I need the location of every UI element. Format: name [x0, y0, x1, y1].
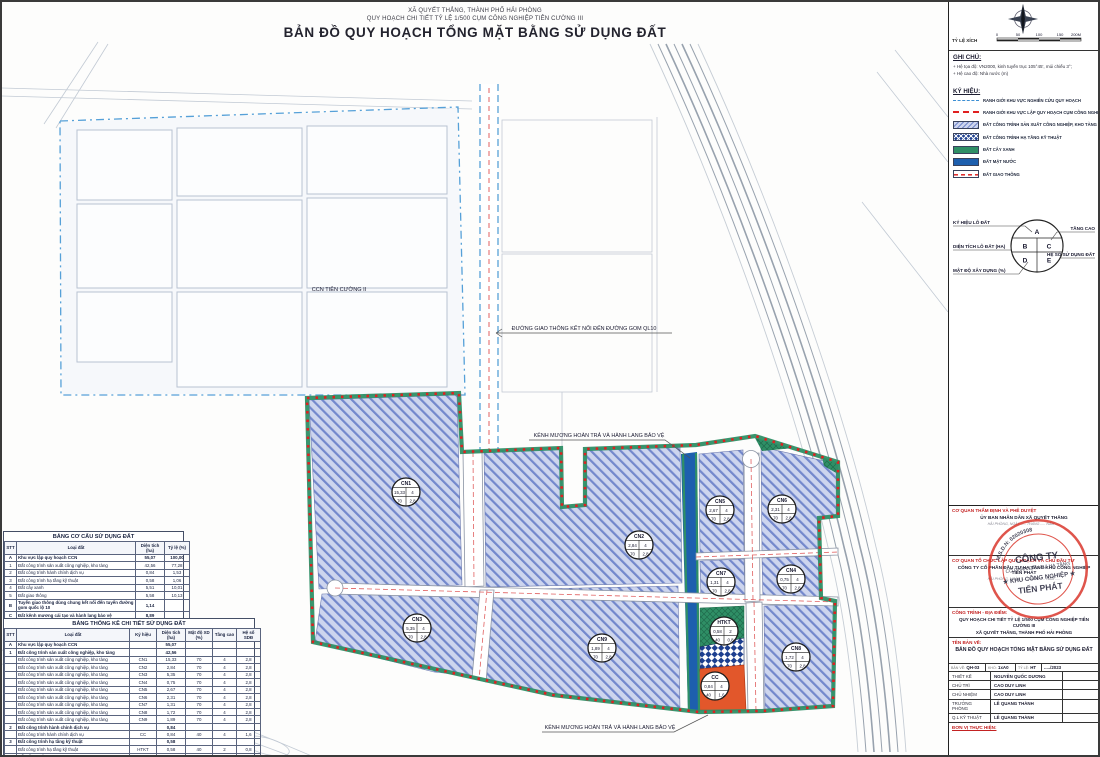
parcel-key-diagram: A B C D E KÝ HIỆU LÔ ĐẤT DIỆN TÍCH LÔ ĐẤ… — [949, 190, 1099, 300]
svg-text:70: 70 — [712, 589, 717, 594]
sidebar-divider — [949, 50, 1099, 51]
scale-tick: 0 — [996, 32, 999, 37]
svg-text:2,8: 2,8 — [794, 586, 801, 591]
plan-swatch-icon — [953, 111, 979, 113]
legend-list: RANH GIỚI KHU VỰC NGHIÊN CỨU QUY HOẠCHRA… — [953, 97, 1097, 178]
scalebar-ticks: 050100150200M — [996, 32, 1081, 37]
land-detail-table: BẢNG THỐNG KÊ CHI TIẾT SỬ DỤNG ĐẤT STTLo… — [3, 618, 255, 757]
land-structure-table-title: BẢNG CƠ CẤU SỬ DỤNG ĐẤT — [4, 532, 183, 541]
personnel-rows: THIẾT KẾNGUYỄN QUỐC DƯƠNGCHỦ TRÌCAO DUY … — [949, 672, 1099, 723]
legend-label: ĐẤT CÂY XANH — [983, 147, 1015, 152]
investor-org-name: CÔNG TY CỔ PHẦN ĐẦU TƯ HẠ TẦNG KHU CÔNG … — [952, 565, 1096, 575]
land-structure-table: BẢNG CƠ CẤU SỬ DỤNG ĐẤT STTLoại đấtDiện … — [3, 531, 184, 621]
sidebar: TỶ LỆ XÍCH 050100150200M GHI CHÚ: + Hệ t… — [948, 2, 1099, 755]
drawing-sheet: CN115,334702,8CN22,844702,8CN52,674702,8… — [0, 0, 1100, 757]
annotation-channel-bottom: KÊNH MƯƠNG HOÀN TRẢ VÀ HÀNH LANG BẢO VỆ — [545, 723, 676, 731]
parcel-key-cell-c: C — [1047, 244, 1052, 251]
study-swatch-icon — [953, 100, 979, 101]
table-row: 3Đất công trình hạ tầng kỹ thuật0,581,06 — [5, 577, 190, 584]
parcel-label-CC: CC0,844401,6 — [701, 672, 729, 700]
table-row: 5Đất giao thông5,5810,13 — [5, 592, 190, 599]
executor-section: ĐƠN VỊ THỰC HIỆN: — [949, 723, 1099, 757]
parcel-key-cell-e: E — [1047, 258, 1052, 265]
svg-text:2,84: 2,84 — [628, 543, 637, 548]
legend-item-plan: RANH GIỚI KHU VỰC LẬP QUY HOẠCH CỤM CÔNG… — [953, 108, 1097, 116]
svg-text:0,58: 0,58 — [713, 629, 722, 634]
svg-text:1,6: 1,6 — [718, 693, 725, 698]
svg-text:1,31: 1,31 — [710, 580, 719, 585]
approval-section: CƠ QUAN THẨM ĐỊNH VÀ PHÊ DUYỆT ỦY BAN NH… — [949, 506, 1099, 556]
svg-text:0,84: 0,84 — [704, 684, 713, 689]
column-header: Hệ số SDĐ — [237, 629, 261, 642]
parcel-label-CN4: CN40,754702,8 — [777, 565, 805, 593]
parcel-key-label-density: MẬT ĐỘ XÂY DỰNG (%) — [953, 266, 1006, 273]
svg-text:CN5: CN5 — [715, 499, 725, 505]
table-row: Đất công trình sản xuất công nghiệp, kho… — [5, 708, 261, 715]
annotation-ccn2: CCN TIÊN CƯỜNG II — [312, 285, 367, 293]
legend-label: ĐẤT CÔNG TRÌNH HẠ TẦNG KỸ THUẬT — [983, 135, 1062, 140]
ccn2-area — [60, 107, 465, 395]
parcel-key-label-floors: TẦNG CAO — [1071, 225, 1096, 231]
annotation-channel-top: KÊNH MƯƠNG HOÀN TRẢ VÀ HÀNH LANG BẢO VỆ — [534, 431, 665, 439]
parcel-label-CN6: CN62,314702,8 — [768, 495, 796, 523]
table-row: Đất công trình sản xuất công nghiệp, kho… — [5, 686, 261, 693]
personnel-row: CHỦ TRÌCAO DUY LINH — [949, 681, 1099, 690]
table-row: Đất công trình sản xuất công nghiệp, kho… — [5, 664, 261, 671]
road-B — [746, 602, 764, 712]
scalebar: 050100150200M — [995, 30, 1095, 46]
project-section: CÔNG TRÌNH - ĐỊA ĐIỂM: QUY HOẠCH CHI TIẾ… — [949, 608, 1099, 638]
svg-text:2,8: 2,8 — [409, 499, 416, 504]
green-swatch-icon — [953, 146, 979, 154]
scale-tick: 200M — [1071, 32, 1081, 37]
notes-title: GHI CHÚ: — [953, 54, 1096, 61]
column-header: Diện tích (ha) — [136, 542, 165, 555]
approval-date-line: HẢI PHÒNG, NGÀY ..... THÁNG ..... NĂM ..… — [952, 522, 1096, 526]
table-row: 2Đất công trình hành chính dịch vụ0,841,… — [5, 569, 190, 576]
personnel-row: TRƯỞNG PHÒNGLÊ QUANG THÀNH — [949, 700, 1099, 714]
column-header: Diện tích (ha) — [157, 629, 186, 642]
scale-tick: 150 — [1057, 32, 1064, 37]
parcel-CN1 — [309, 395, 462, 589]
parcel-label-CN9: CN91,894702,8 — [588, 634, 616, 662]
svg-text:CN4: CN4 — [786, 568, 796, 574]
land-detail-table-grid: STTLoại đấtKý hiệuDiện tích (ha)Mật độ X… — [4, 628, 261, 757]
legend-item-technical: ĐẤT CÔNG TRÌNH HẠ TẦNG KỸ THUẬT — [953, 133, 1097, 141]
drawing-meta-row: BẢN VẼ: QH-03KHỔ: 1xA0TỶ LỆ: HT ...../20… — [949, 664, 1099, 672]
svg-text:0,75: 0,75 — [780, 577, 789, 582]
svg-text:70: 70 — [711, 517, 716, 522]
column-header: STT — [5, 629, 17, 642]
parcel-label-CN1: CN115,334702,8 — [392, 478, 420, 506]
table-row: 4Đất cây xanh5,51 — [5, 753, 261, 757]
svg-text:2,8: 2,8 — [723, 517, 730, 522]
table-row: 1Đất công trình sản xuất công nghiệp, kh… — [5, 562, 190, 569]
table-row: Đất công trình hành chính dịch vụCC0,844… — [5, 731, 261, 738]
parcel-key-label-far: HỆ SỐ SỬ DỤNG ĐẤT — [1047, 250, 1095, 257]
column-header: Loại đất — [17, 629, 130, 642]
svg-text:2,8: 2,8 — [785, 516, 792, 521]
investor-date-line: HẢI PHÒNG, NGÀY ..... THÁNG ..... NĂM ..… — [952, 577, 1096, 581]
annotation-connect-road: ĐƯỜNG GIAO THÔNG KẾT NỐI ĐẾN ĐƯỜNG GOM Q… — [512, 325, 657, 332]
traffic-swatch-icon — [953, 170, 979, 178]
parcel-key-cell-b: B — [1023, 244, 1028, 251]
land-detail-table-title: BẢNG THỐNG KÊ CHI TIẾT SỬ DỤNG ĐẤT — [4, 619, 254, 628]
parcel-key-label-key: KÝ HIỆU LÔ ĐẤT — [953, 218, 990, 225]
svg-text:1,89: 1,89 — [591, 646, 600, 651]
approval-org-name: ỦY BAN NHÂN DÂN XÃ QUYẾT THẮNG — [952, 515, 1096, 520]
svg-text:CN9: CN9 — [597, 637, 607, 643]
svg-text:2,8: 2,8 — [724, 589, 731, 594]
project-line1: QUY HOẠCH CHI TIẾT TỶ LỆ 1/500 CỤM CÔNG … — [952, 617, 1096, 629]
personnel-row: Q.L KỸ THUẬTLÊ QUANG THÀNH — [949, 714, 1099, 723]
drawing-name: BẢN ĐỒ QUY HOẠCH TỔNG MẶT BẰNG SỬ DỤNG Đ… — [952, 647, 1096, 653]
table-row: 3Đất công trình hạ tầng kỹ thuật0,58 — [5, 738, 261, 745]
legend-label: RANH GIỚI KHU VỰC NGHIÊN CỨU QUY HOẠCH — [983, 98, 1081, 103]
table-row: 1Đất công trình sản xuất công nghiệp, kh… — [5, 649, 261, 656]
title-block: CƠ QUAN THẨM ĐỊNH VÀ PHÊ DUYỆT ỦY BAN NH… — [949, 505, 1099, 755]
svg-text:40: 40 — [706, 693, 711, 698]
project-line2: XÃ QUYẾT THẮNG, THÀNH PHỐ HẢI PHÒNG — [952, 630, 1096, 636]
svg-text:2,8: 2,8 — [605, 655, 612, 660]
svg-text:70: 70 — [630, 552, 635, 557]
svg-text:5,35: 5,35 — [406, 626, 415, 631]
svg-text:1,72: 1,72 — [785, 655, 794, 660]
svg-text:70: 70 — [593, 655, 598, 660]
note-item: + Hệ tọa độ: VN2000, kinh tuyến trục 105… — [953, 63, 1096, 70]
table-row: Đất công trình sản xuất công nghiệp, kho… — [5, 716, 261, 723]
map-area: CN115,334702,8CN22,844702,8CN52,674702,8… — [2, 2, 948, 755]
parcel-CN9 — [475, 586, 680, 710]
svg-text:70: 70 — [408, 635, 413, 640]
scale-tick: 50 — [1016, 32, 1021, 37]
legend-item-study: RANH GIỚI KHU VỰC NGHIÊN CỨU QUY HOẠCH — [953, 97, 1097, 104]
project-label: CÔNG TRÌNH - ĐỊA ĐIỂM: — [952, 610, 1096, 615]
svg-text:CN7: CN7 — [716, 571, 726, 577]
svg-text:0,8: 0,8 — [727, 638, 734, 643]
technical-swatch-icon — [953, 133, 979, 141]
table-row: AKhu vực lập quy hoạch CCN55,07100,00 — [5, 554, 190, 561]
svg-text:70: 70 — [787, 664, 792, 669]
column-header: Loại đất — [17, 542, 136, 555]
drawing-name-section: TÊN BẢN VẼ: BẢN ĐỒ QUY HOẠCH TỔNG MẶT BẰ… — [949, 638, 1099, 664]
table-row: Đất công trình sản xuất công nghiệp, kho… — [5, 679, 261, 686]
svg-text:CN3: CN3 — [412, 617, 422, 623]
parcel-CN3 — [315, 590, 480, 676]
svg-text:70: 70 — [782, 586, 787, 591]
svg-text:CC: CC — [711, 675, 719, 681]
legend-label: ĐẤT MẶT NƯỚC — [983, 159, 1016, 164]
parcel-label-CN8: CN81,724702,8 — [782, 643, 810, 671]
land-structure-table-grid: STTLoại đấtDiện tích (ha)Tỷ lệ (%)AKhu v… — [4, 541, 190, 620]
svg-text:2,67: 2,67 — [709, 508, 718, 513]
notes-list: + Hệ tọa độ: VN2000, kinh tuyến trục 105… — [953, 63, 1096, 77]
parcel-label-HTKT: HTKT0,582400,8 — [710, 617, 738, 645]
svg-text:CN1: CN1 — [401, 481, 411, 487]
table-row: Đất công trình sản xuất công nghiệp, kho… — [5, 701, 261, 708]
drawing-name-label: TÊN BẢN VẼ: — [952, 640, 1096, 645]
legend-item-industrial: ĐẤT CÔNG TRÌNH SẢN XUẤT CÔNG NGHIỆP, KHO… — [953, 121, 1097, 129]
industrial-swatch-icon — [953, 121, 979, 129]
table-row: BTuyến giao thông dùng chung kết nối đến… — [5, 599, 190, 612]
table-row: Đất công trình sản xuất công nghiệp, kho… — [5, 671, 261, 678]
column-header: Tầng cao — [213, 629, 237, 642]
svg-text:2,31: 2,31 — [771, 507, 780, 512]
svg-text:HTKT: HTKT — [717, 620, 730, 626]
meta-cell: ...../2023 — [1042, 664, 1095, 671]
parcel-key-cell-a: A — [1035, 229, 1040, 236]
connector-road — [480, 84, 498, 454]
scale-tick: 100 — [1036, 32, 1043, 37]
table-row: 2Đất công trình hành chính dịch vụ0,84 — [5, 723, 261, 730]
approval-label: CƠ QUAN THẨM ĐỊNH VÀ PHÊ DUYỆT — [952, 508, 1096, 513]
column-header: Tỷ lệ (%) — [165, 542, 190, 555]
investor-label: CƠ QUAN TỔ CHỨC LẬP QUY HOẠCH VÀ CHỦ ĐẦU… — [952, 558, 1096, 563]
column-header: Mật độ XD (%) — [186, 629, 213, 642]
legend-item-traffic: ĐẤT GIAO THÔNG — [953, 170, 1097, 178]
svg-text:70: 70 — [773, 516, 778, 521]
svg-text:2,8: 2,8 — [642, 552, 649, 557]
meta-cell: BẢN VẼ: QH-03 — [949, 664, 986, 671]
executor-label: ĐƠN VỊ THỰC HIỆN: — [952, 725, 1096, 730]
svg-text:CN8: CN8 — [791, 646, 801, 652]
svg-text:CN2: CN2 — [634, 534, 644, 540]
column-header: STT — [5, 542, 17, 555]
note-item: + Hệ cao độ: Nhà nước (m) — [953, 70, 1096, 77]
legend-item-green: ĐẤT CÂY XANH — [953, 146, 1097, 154]
personnel-row: THIẾT KẾNGUYỄN QUỐC DƯƠNG — [949, 672, 1099, 681]
svg-text:CN6: CN6 — [777, 498, 787, 504]
water-swatch-icon — [953, 158, 979, 166]
legend-item-water: ĐẤT MẶT NƯỚC — [953, 158, 1097, 166]
svg-text:70: 70 — [397, 499, 402, 504]
parcel-label-CN5: CN52,674702,8 — [706, 496, 734, 524]
meta-cell: TỶ LỆ: HT — [1016, 664, 1042, 671]
scalebar-label: TỶ LỆ XÍCH — [952, 38, 977, 43]
parcel-label-CN2: CN22,844702,8 — [625, 531, 653, 559]
legend-title: KÝ HIỆU: — [953, 88, 1097, 95]
svg-text:2,8: 2,8 — [420, 635, 427, 640]
table-row: 4Đất cây xanh5,5110,01 — [5, 584, 190, 591]
legend-label: ĐẤT CÔNG TRÌNH SẢN XUẤT CÔNG NGHIỆP, KHO… — [983, 122, 1097, 127]
notes-section: GHI CHÚ: + Hệ tọa độ: VN2000, kinh tuyến… — [953, 54, 1096, 77]
legend-label: ĐẤT GIAO THÔNG — [983, 172, 1020, 177]
meta-cell: KHỔ: 1xA0 — [986, 664, 1016, 671]
table-row: AKhu vực lập quy hoạch CCN55,07 — [5, 641, 261, 648]
svg-text:40: 40 — [715, 638, 720, 643]
parcel-label-CN3: CN35,354702,8 — [403, 614, 431, 642]
parcel-key-label-area: DIỆN TÍCH LÔ ĐẤT (HA) — [953, 242, 1006, 249]
table-row: Đất công trình hạ tầng kỹ thuậtHTKT0,584… — [5, 746, 261, 753]
legend-label: RANH GIỚI KHU VỰC LẬP QUY HOẠCH CỤM CÔNG… — [983, 110, 1100, 115]
svg-text:2,8: 2,8 — [799, 664, 806, 669]
table-row: Đất công trình sản xuất công nghiệp, kho… — [5, 694, 261, 701]
investor-section: CƠ QUAN TỔ CHỨC LẬP QUY HOẠCH VÀ CHỦ ĐẦU… — [949, 556, 1099, 608]
column-header: Ký hiệu — [130, 629, 157, 642]
parcel-label-CN7: CN71,314702,8 — [707, 568, 735, 596]
personnel-row: CHỦ NHIỆMCAO DUY LINH — [949, 690, 1099, 699]
table-row: Đất công trình sản xuất công nghiệp, kho… — [5, 656, 261, 663]
svg-text:15,33: 15,33 — [394, 490, 406, 495]
legend-section: KÝ HIỆU: RANH GIỚI KHU VỰC NGHIÊN CỨU QU… — [953, 88, 1097, 183]
